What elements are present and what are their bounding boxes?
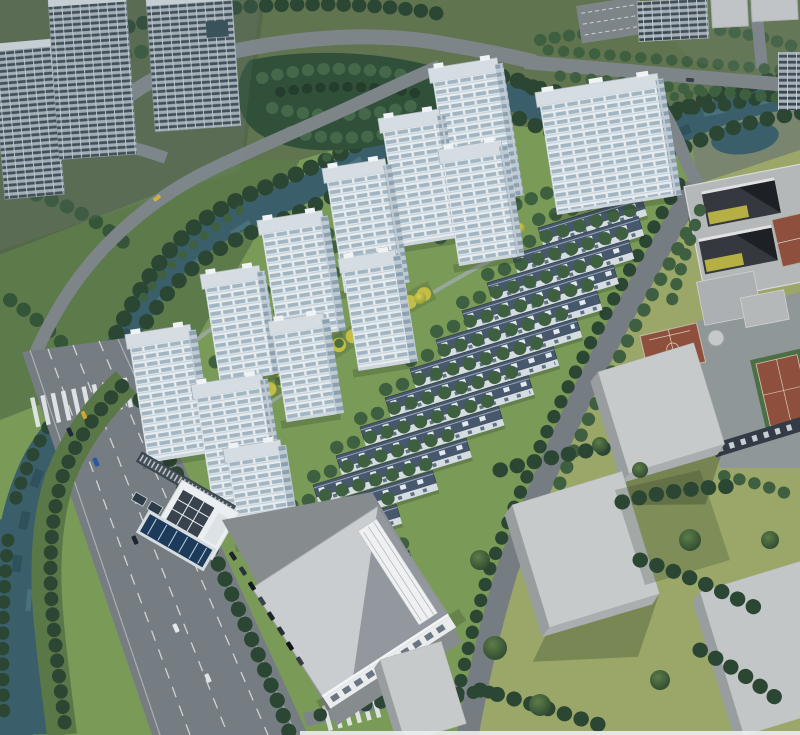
- car: [686, 78, 694, 83]
- masterplan-rendering: [0, 0, 800, 735]
- tree: [483, 636, 507, 660]
- tree: [679, 529, 701, 551]
- tree: [761, 531, 779, 549]
- tree: [632, 462, 648, 478]
- tree: [470, 550, 490, 570]
- tree: [650, 670, 670, 690]
- tree: [529, 694, 551, 716]
- aerial-render: [0, 0, 800, 735]
- round-pavilion: [708, 330, 724, 346]
- bottom-margin: [300, 731, 800, 735]
- tree: [592, 437, 608, 453]
